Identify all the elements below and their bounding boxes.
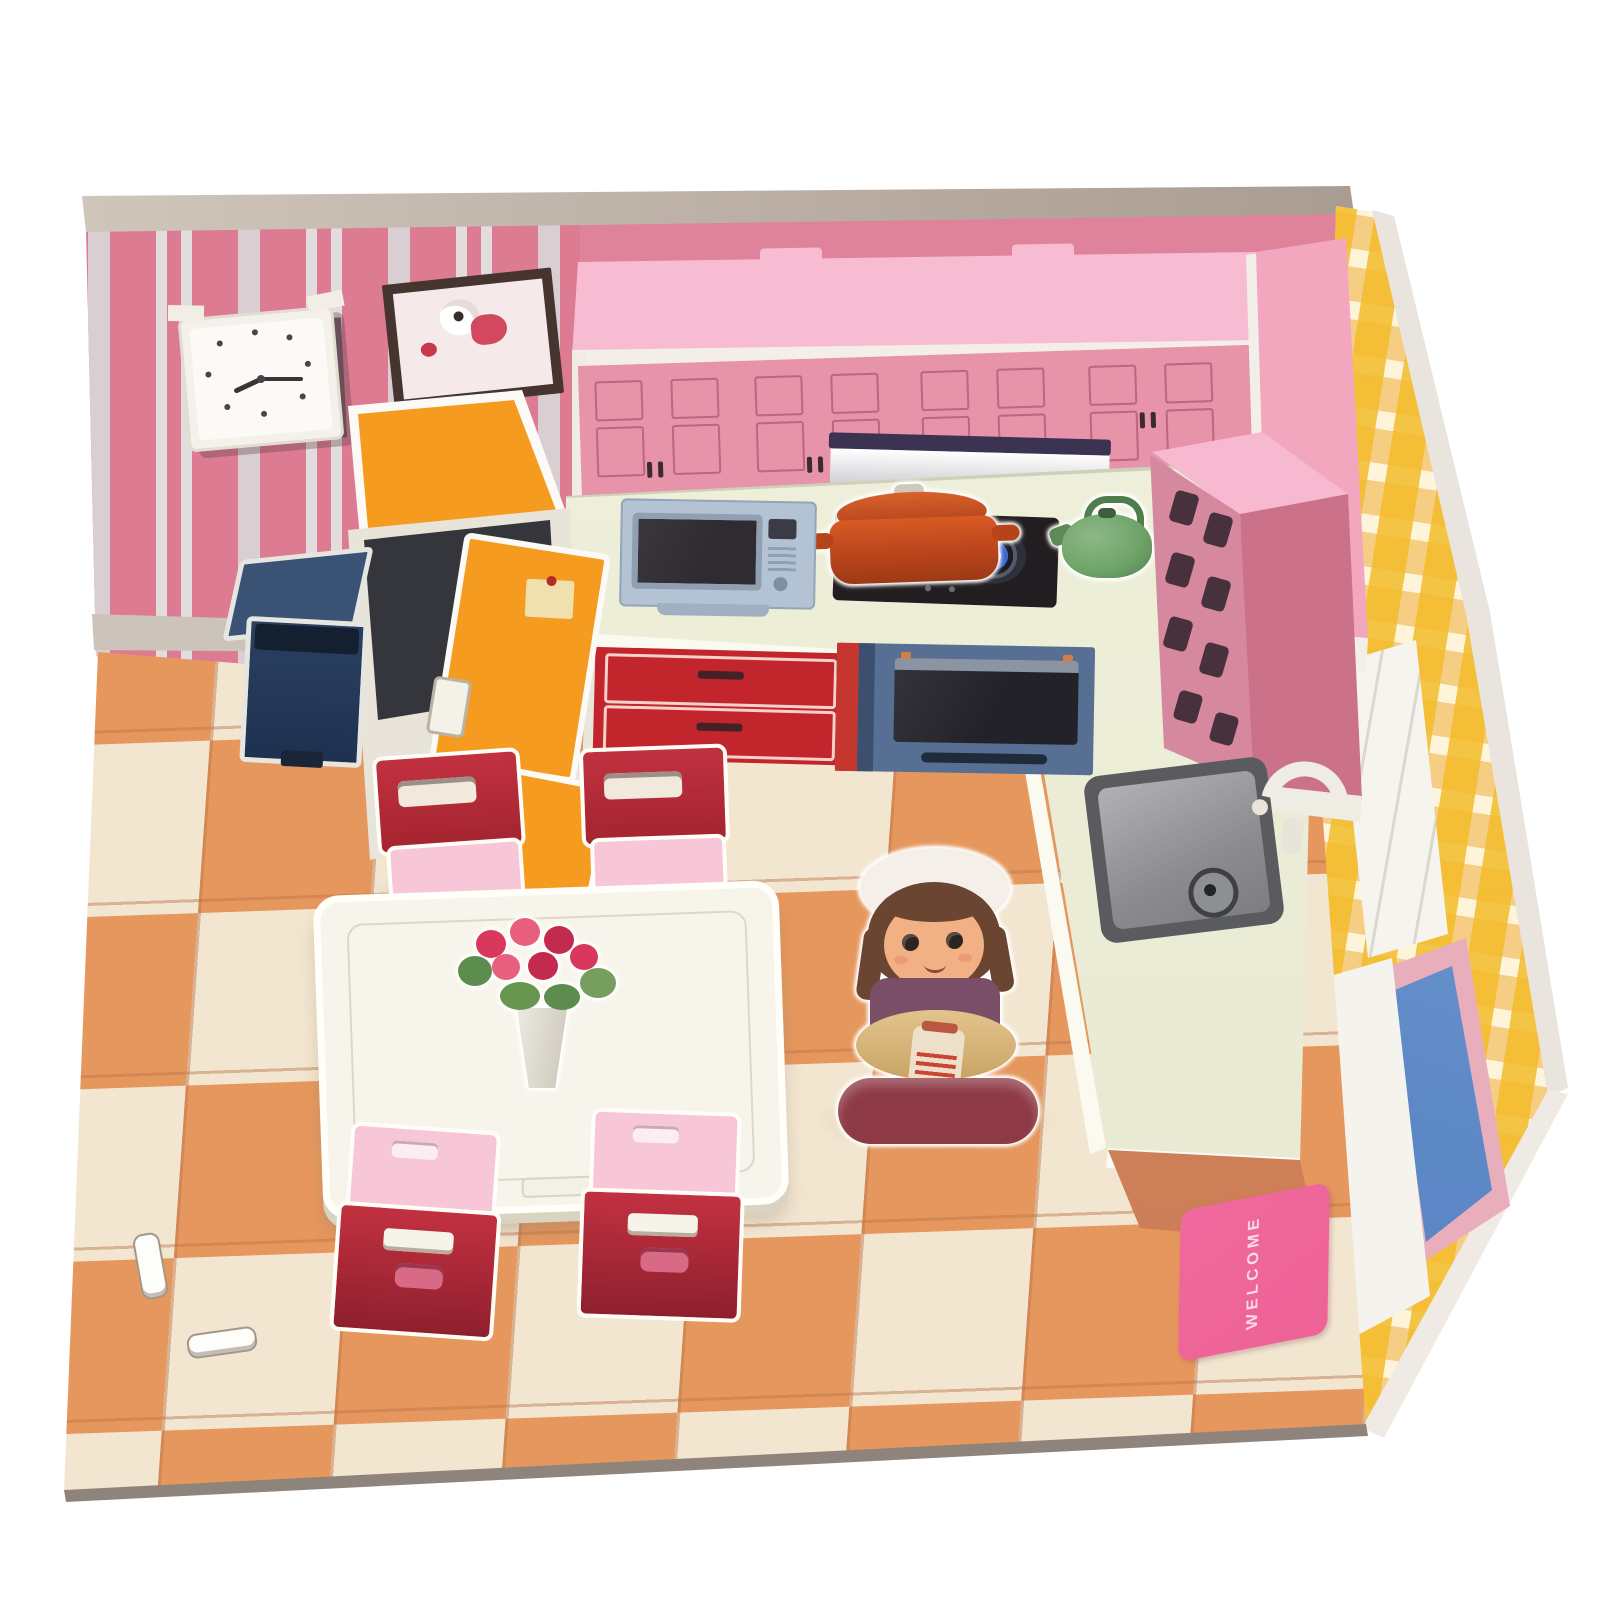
- microwave-foot: [657, 603, 769, 617]
- vase: [512, 1008, 572, 1088]
- blossom: [528, 952, 558, 980]
- microwave-panel: [763, 515, 802, 596]
- microwave-buttons: [768, 547, 796, 571]
- microwave-oven: [619, 498, 817, 609]
- blossom: [570, 944, 598, 970]
- blossom: [544, 926, 574, 954]
- clock-face: [189, 317, 332, 440]
- chair-hole: [640, 1247, 689, 1273]
- welcome-mat-text: WELCOME: [1244, 1213, 1264, 1330]
- chair-slot: [397, 776, 477, 807]
- oven-glass: [893, 658, 1078, 745]
- picture-art: [420, 342, 437, 358]
- chair-slot: [604, 771, 683, 800]
- flower-vase: [440, 912, 640, 1102]
- clock-center: [257, 375, 266, 384]
- oven-indicator: [1063, 655, 1073, 662]
- dollhouse-kitchen-scene: WELCOME: [0, 0, 1601, 1601]
- fridge-note: [525, 579, 575, 619]
- pot-body: [829, 515, 999, 585]
- minute-hand: [261, 377, 303, 381]
- sink-drain: [1186, 865, 1242, 921]
- pot-handle: [991, 524, 1020, 541]
- microwave-window: [631, 513, 762, 591]
- jar-label: [915, 1048, 957, 1078]
- bin-opening: [254, 623, 359, 654]
- girl-bangs: [882, 888, 986, 922]
- faucet: [1246, 755, 1343, 864]
- welcome-mat: WELCOME: [1178, 1182, 1330, 1362]
- girl-base: [838, 1078, 1038, 1144]
- drawer-handle: [698, 671, 744, 680]
- cabinet-door: [658, 367, 734, 485]
- picture-art: [470, 312, 509, 346]
- bin-foot: [281, 750, 324, 768]
- trash-bin: [215, 545, 375, 765]
- cabinet-handle: [807, 457, 813, 473]
- leaves: [500, 982, 540, 1010]
- chair-slot: [391, 1140, 438, 1160]
- chair-front-panel: [329, 1201, 502, 1342]
- girl-blush: [958, 954, 972, 962]
- girl-eye: [946, 932, 963, 949]
- blossom: [492, 954, 520, 980]
- kettle-body: [1062, 514, 1152, 578]
- drawer: [604, 653, 837, 709]
- leaves: [458, 956, 492, 986]
- cabinet-tab: [760, 247, 822, 264]
- kettle-lid: [1098, 508, 1116, 518]
- pot-cutout: [808, 484, 1017, 609]
- microwave-dial: [773, 577, 787, 591]
- chair-front-panel: [576, 1187, 744, 1323]
- chair-front-left: [323, 1120, 508, 1346]
- drain-hole: [1203, 883, 1216, 896]
- cabinet-tab: [1012, 243, 1074, 260]
- leaves: [544, 984, 580, 1010]
- oven-side-accent: [835, 643, 859, 771]
- microwave-display: [768, 519, 796, 539]
- oven-glass-bar: [895, 658, 1079, 673]
- kettle-cutout: [1054, 496, 1162, 586]
- cabinet-handle: [1140, 412, 1146, 428]
- clock-bracket: [168, 305, 204, 322]
- girl-eye: [902, 934, 919, 951]
- blossom: [510, 918, 540, 946]
- girl-figure: [798, 842, 1073, 1147]
- chair-handle-slot: [627, 1213, 698, 1237]
- chair-hole: [394, 1263, 444, 1290]
- girl-mouth: [924, 956, 946, 973]
- wall-clock: [177, 305, 344, 452]
- oven-unit: [835, 643, 1095, 775]
- drawer-handle: [696, 723, 742, 732]
- oven-indicator: [901, 652, 911, 659]
- bin-body: [239, 616, 368, 768]
- oven-handle: [921, 752, 1047, 764]
- cabinet-handle: [647, 462, 653, 478]
- leaves: [580, 968, 616, 998]
- oven-side-accent: [857, 643, 875, 771]
- chair-handle-slot: [383, 1228, 454, 1255]
- chair-slot: [633, 1125, 680, 1144]
- chair-front-right: [570, 1107, 747, 1328]
- note-magnet: [546, 576, 557, 587]
- girl-blush: [894, 956, 908, 964]
